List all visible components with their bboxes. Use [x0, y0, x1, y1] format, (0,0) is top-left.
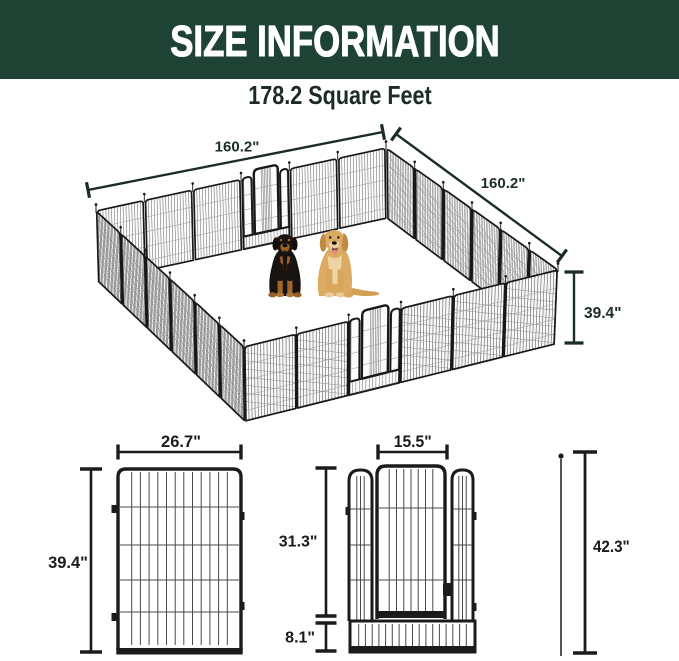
svg-text:160.2": 160.2" — [215, 139, 260, 156]
svg-text:39.4": 39.4" — [48, 554, 88, 572]
svg-text:31.3": 31.3" — [279, 534, 318, 551]
svg-text:26.7": 26.7" — [161, 433, 201, 451]
svg-text:178.2 Square Feet: 178.2 Square Feet — [248, 81, 431, 110]
svg-text:42.3": 42.3" — [593, 538, 630, 556]
svg-text:8.1": 8.1" — [285, 630, 315, 647]
svg-text:39.4": 39.4" — [584, 305, 622, 322]
svg-text:15.5": 15.5" — [394, 433, 432, 451]
svg-text:SIZE INFORMATION: SIZE INFORMATION — [170, 17, 499, 66]
svg-text:160.2": 160.2" — [481, 175, 526, 192]
